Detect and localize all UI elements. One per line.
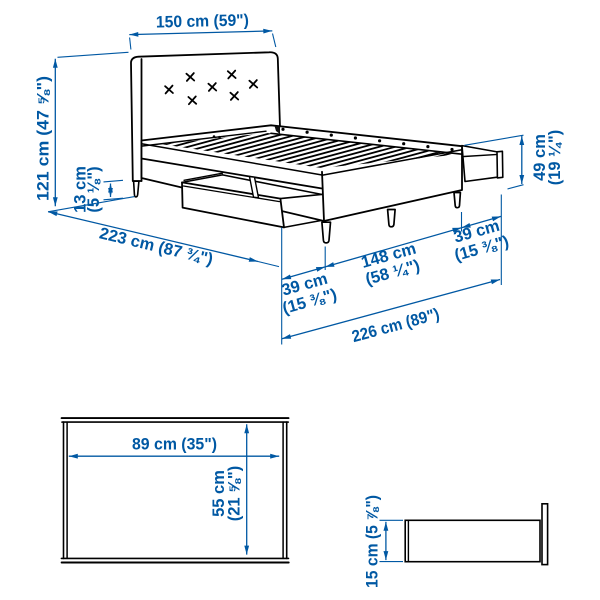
svg-text:(19 ¼"): (19 ¼")	[546, 130, 564, 186]
svg-text:150 cm (59"): 150 cm (59")	[156, 11, 249, 31]
svg-text:223 cm (87 ¾"): 223 cm (87 ¾")	[98, 224, 215, 268]
svg-text:15 cm (5 ⅞"): 15 cm (5 ⅞")	[364, 495, 382, 588]
svg-text:89 cm (35"): 89 cm (35")	[132, 436, 217, 454]
svg-text:(5 ⅛"): (5 ⅛")	[85, 166, 103, 212]
svg-text:226 cm (89"): 226 cm (89")	[350, 305, 442, 346]
svg-text:(21 ⅝"): (21 ⅝")	[226, 466, 244, 522]
svg-text:121 cm (47 ⅝"): 121 cm (47 ⅝")	[35, 76, 53, 201]
